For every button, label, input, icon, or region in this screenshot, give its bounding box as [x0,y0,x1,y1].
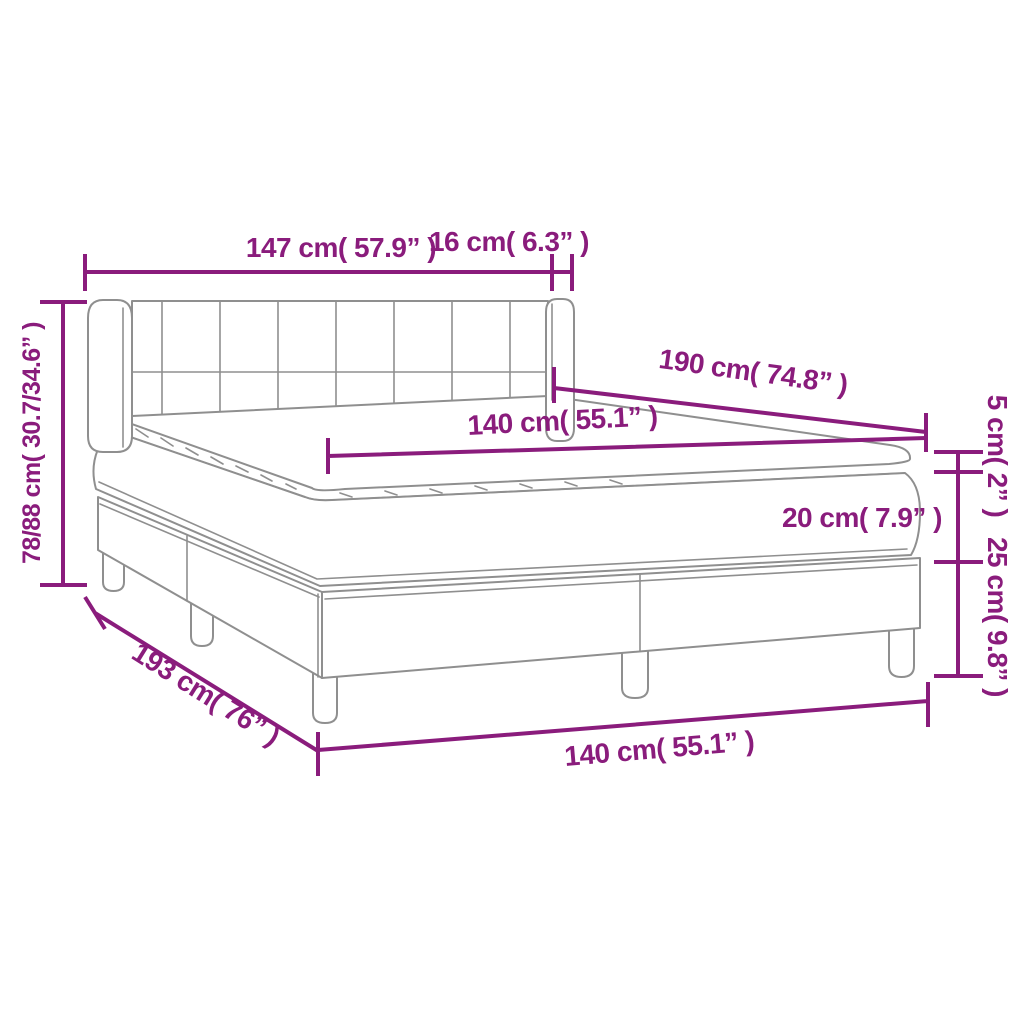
headboard-left-post [88,300,132,452]
overall-height-label: 78/88 cm( 30.7/34.6” ) [18,322,46,564]
overall-length-label: 193 cm( 76” ) [127,636,286,751]
topper-thickness-label: 5 cm( 2” ) [982,395,1013,518]
base-height-label: 25 cm( 9.8” ) [982,537,1013,697]
mattress-width-bottom-label: 140 cm( 55.1” ) [563,725,755,772]
mattress-length-label: 190 cm( 74.8” ) [657,343,850,400]
bed-dimension-diagram: 147 cm( 57.9” ) 16 cm( 6.3” ) 78/88 cm( … [0,0,1024,1024]
mattress-thickness-label: 20 cm( 7.9” ) [782,502,942,533]
diagram-canvas: 147 cm( 57.9” ) 16 cm( 6.3” ) 78/88 cm( … [0,0,1024,1024]
headboard-width-label: 147 cm( 57.9” ) [246,232,436,263]
dim-line-overall-height [40,302,87,585]
headboard-side-depth-label: 16 cm( 6.3” ) [429,226,589,257]
dim-line-height-stack [934,452,983,676]
